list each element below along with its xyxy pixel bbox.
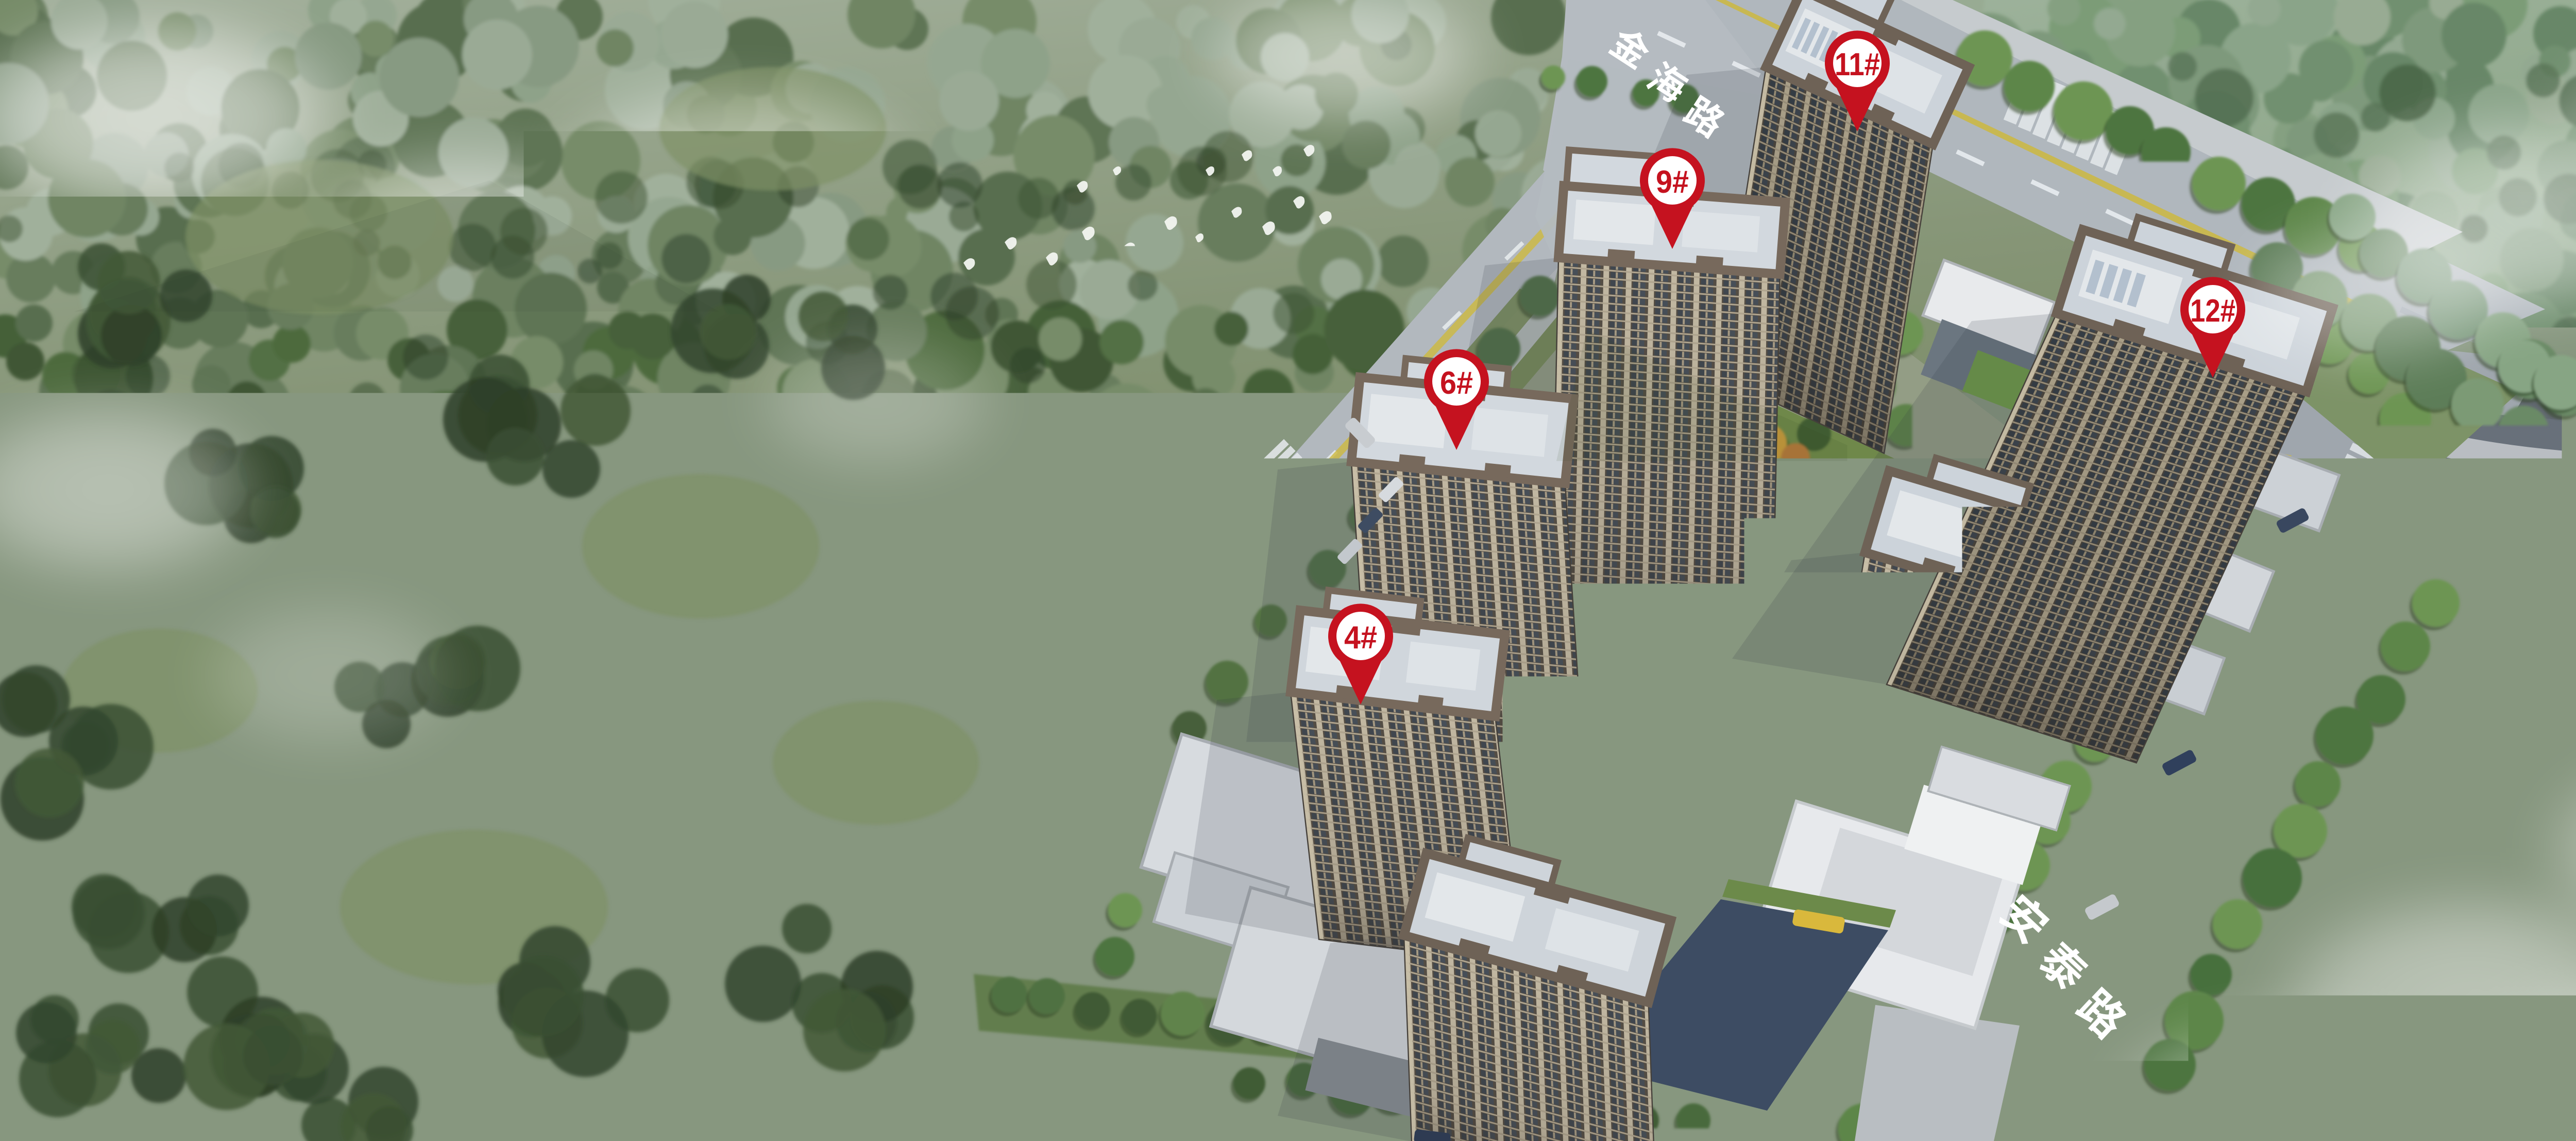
svg-text:12#: 12# (2190, 293, 2235, 329)
svg-text:4#: 4# (1344, 620, 1377, 656)
svg-text:1#: 1# (1032, 783, 1065, 818)
svg-text:2#: 2# (1556, 885, 1589, 920)
svg-text:7#: 7# (2007, 473, 2040, 508)
svg-text:6#: 6# (1440, 365, 1473, 401)
svg-text:9#: 9# (1656, 164, 1689, 200)
svg-text:11#: 11# (1835, 47, 1880, 82)
